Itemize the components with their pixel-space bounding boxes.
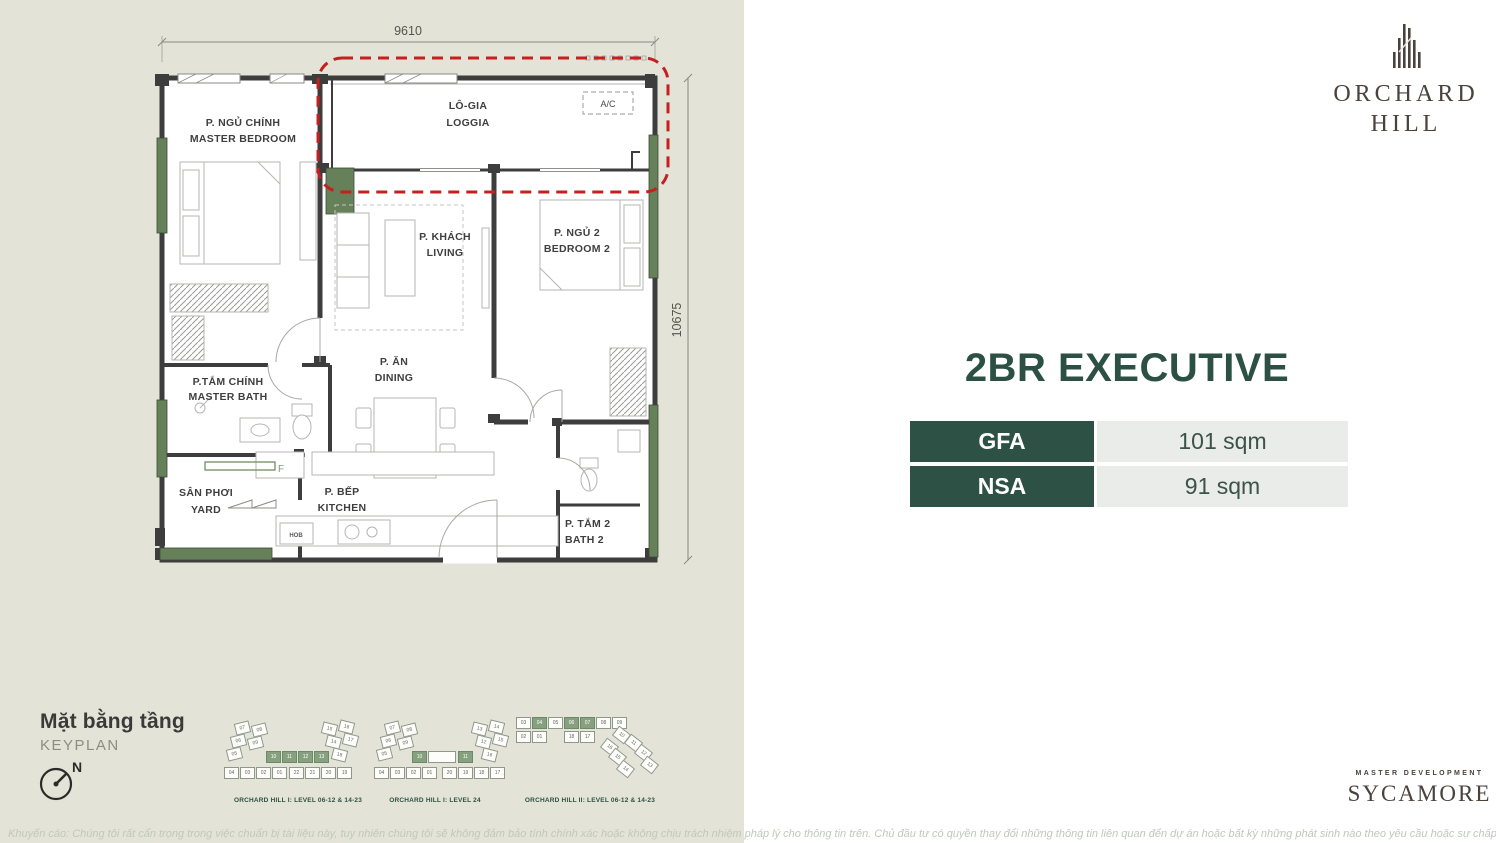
- svg-text:SÂN PHƠI: SÂN PHƠI: [179, 486, 233, 499]
- gfa-label-cell: GFA: [910, 421, 1094, 462]
- keyplan-unit-block: 19: [458, 767, 473, 779]
- keyplan-unit-block: 09: [397, 735, 414, 750]
- dim-width-label: 9610: [394, 24, 422, 38]
- svg-text:LÔ-GIA: LÔ-GIA: [449, 99, 488, 112]
- sycamore-wordmark: SYCAMORE: [1342, 781, 1497, 807]
- svg-text:P. NGỦ CHÍNH: P. NGỦ CHÍNH: [206, 116, 281, 129]
- dimension-height: [684, 74, 692, 564]
- keyplan-unit-block: 06: [564, 717, 579, 729]
- keyplan-map-3: 030405060708090201181710161115121413: [516, 717, 668, 783]
- keyplan-unit-block: 18: [564, 731, 579, 743]
- keyplan-unit-block: 07: [580, 717, 595, 729]
- nsa-label-cell: NSA: [910, 466, 1094, 507]
- info-panel: ORCHARD HILL 2BR EXECUTIVE GFA 101 sqm N…: [744, 0, 1500, 843]
- keyplan-unit-block: 05: [548, 717, 563, 729]
- keyplan-unit-block: 05: [376, 746, 393, 761]
- keyplan-unit-block: 01: [272, 767, 287, 779]
- keyplan-unit-block: 09: [247, 735, 264, 750]
- svg-text:MASTER BEDROOM: MASTER BEDROOM: [190, 133, 296, 145]
- keyplan-map-1: 0708060905101112130403020122212019151614…: [222, 722, 374, 788]
- keyplan-unit-block: 02: [516, 731, 531, 743]
- orchard-hill-logo: ORCHARD HILL: [1331, 18, 1481, 138]
- keyplan-unit-block: 22: [289, 767, 304, 779]
- dim-height-label: 10675: [670, 303, 684, 338]
- nsa-value-cell: 91 sqm: [1097, 466, 1348, 507]
- keyplan-unit-block: 17: [580, 731, 595, 743]
- keyplan-unit-block: 21: [305, 767, 320, 779]
- keyplan-unit-block: 15: [492, 732, 509, 747]
- svg-text:LOGGIA: LOGGIA: [446, 117, 489, 129]
- keyplan-unit-block: 02: [406, 767, 421, 779]
- logo-name-line2: HILL: [1331, 111, 1481, 137]
- svg-text:P. NGỦ 2: P. NGỦ 2: [554, 226, 600, 239]
- svg-text:DINING: DINING: [375, 372, 414, 384]
- keyplan-unit-block: 10: [412, 751, 427, 763]
- keyplan-unit-block: 01: [422, 767, 437, 779]
- keyplan-unit-block: 11: [282, 751, 297, 763]
- keyplan-unit-block: 05: [226, 746, 243, 761]
- keyplan-unit-block: 12: [298, 751, 313, 763]
- table-row-gfa: GFA 101 sqm: [910, 421, 1348, 462]
- svg-text:P.TẮM CHÍNH: P.TẮM CHÍNH: [193, 375, 264, 388]
- keyplan-unit-block: 03: [390, 767, 405, 779]
- master-development-brand: MASTER DEVELOPMENT SYCAMORE: [1342, 770, 1497, 807]
- compass-hub: [54, 782, 59, 787]
- keyplan-title-vi: Mặt bằng tầng: [40, 710, 185, 734]
- keyplan-unit-block: 04: [224, 767, 239, 779]
- svg-text:LIVING: LIVING: [427, 247, 464, 259]
- unit-type-title: 2BR EXECUTIVE: [807, 346, 1447, 391]
- gfa-value-cell: 101 sqm: [1097, 421, 1348, 462]
- keyplan-heading: Mặt bằng tầng KEYPLAN: [40, 710, 185, 754]
- svg-text:P. ĂN: P. ĂN: [380, 355, 408, 368]
- svg-text:P. BẾP: P. BẾP: [325, 485, 360, 498]
- keyplan-title-en: KEYPLAN: [40, 737, 185, 754]
- area-spec-table: GFA 101 sqm NSA 91 sqm: [910, 421, 1348, 511]
- svg-text:BEDROOM 2: BEDROOM 2: [544, 243, 610, 255]
- keyplan-unit-block: 03: [240, 767, 255, 779]
- ac-ledge: A/C: [583, 92, 633, 114]
- logo-name-line1: ORCHARD: [1331, 81, 1481, 107]
- keyplan-unit-block: 01: [532, 731, 547, 743]
- keyplan-unit-block: 18: [331, 747, 348, 762]
- table-row-nsa: NSA 91 sqm: [910, 466, 1348, 507]
- keyplan-unit-block: 02: [256, 767, 271, 779]
- fridge-label: F: [278, 464, 284, 475]
- svg-text:MASTER BATH: MASTER BATH: [189, 391, 268, 403]
- keyplan-unit-block: [428, 751, 456, 763]
- keyplan-unit-block: 19: [337, 767, 352, 779]
- keyplan-caption-2: ORCHARD HILL I: LEVEL 24: [350, 797, 520, 804]
- svg-text:YARD: YARD: [191, 504, 221, 516]
- master-development-label: MASTER DEVELOPMENT: [1342, 770, 1497, 777]
- keyplan-unit-block: 10: [266, 751, 281, 763]
- keyplan-unit-block: 04: [374, 767, 389, 779]
- keyplan-unit-block: 20: [442, 767, 457, 779]
- legal-disclaimer: Khuyến cáo: Chúng tôi rất cẩn trọng tron…: [8, 828, 1496, 840]
- keyplan-map-2: 0708060905101104030201201918171314121516: [372, 722, 524, 788]
- keyplan-unit-block: 04: [532, 717, 547, 729]
- keyplan-unit-block: 13: [314, 751, 329, 763]
- keyplan-caption-3: ORCHARD HILL II: LEVEL 06-12 & 14-23: [505, 797, 675, 804]
- north-compass: N: [34, 758, 90, 806]
- hob-label: HOB: [289, 533, 303, 539]
- svg-text:KITCHEN: KITCHEN: [318, 502, 367, 514]
- keyplan-unit-block: 17: [490, 767, 505, 779]
- keyplan-unit-block: 17: [342, 732, 359, 747]
- keyplan-unit-block: 11: [458, 751, 473, 763]
- svg-text:P. KHÁCH: P. KHÁCH: [419, 230, 471, 243]
- keyplan-unit-block: 20: [321, 767, 336, 779]
- floorplan-drawing: 9610 10675: [0, 0, 744, 700]
- keyplan-unit-block: 08: [596, 717, 611, 729]
- keyplan-unit-block: 18: [474, 767, 489, 779]
- svg-text:BATH 2: BATH 2: [565, 534, 604, 546]
- keyplan-unit-block: 03: [516, 717, 531, 729]
- floorplan-panel: 9610 10675: [0, 0, 744, 843]
- tree-icon: [1384, 18, 1428, 72]
- keyplan-unit-block: 16: [481, 747, 498, 762]
- ac-label: A/C: [600, 99, 616, 109]
- north-label: N: [72, 759, 82, 775]
- svg-text:P. TẮM 2: P. TẮM 2: [565, 517, 610, 530]
